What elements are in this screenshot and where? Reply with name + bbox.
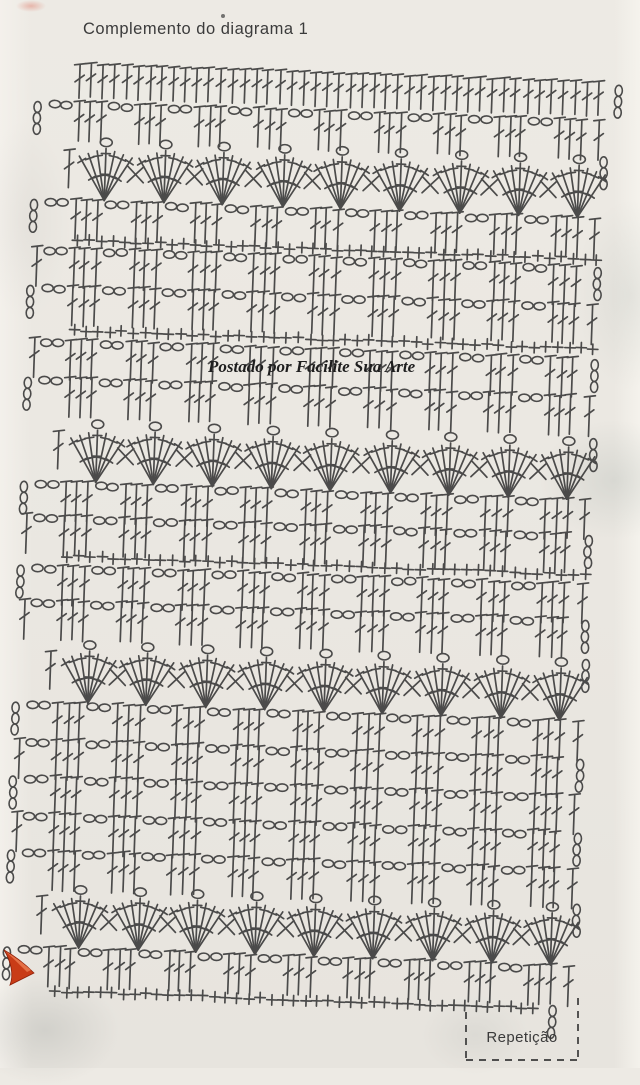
watermark-text: Postado por Facilite Sua Arte [208, 357, 415, 377]
page-title: Complemento do diagrama 1 [83, 20, 308, 39]
stitch-rows [1, 60, 623, 1040]
row-fan [44, 639, 590, 721]
row-fan [52, 419, 598, 501]
crochet-chart [0, 0, 640, 1068]
row-fan [62, 137, 608, 219]
row-sc [62, 550, 592, 582]
row-dc [73, 62, 622, 119]
repetition-label: Repetição [466, 1029, 578, 1046]
scanned-page: { "header": { "title": "Complemento do d… [0, 0, 640, 1068]
row-fan [35, 884, 581, 966]
row-cluster [32, 98, 604, 161]
